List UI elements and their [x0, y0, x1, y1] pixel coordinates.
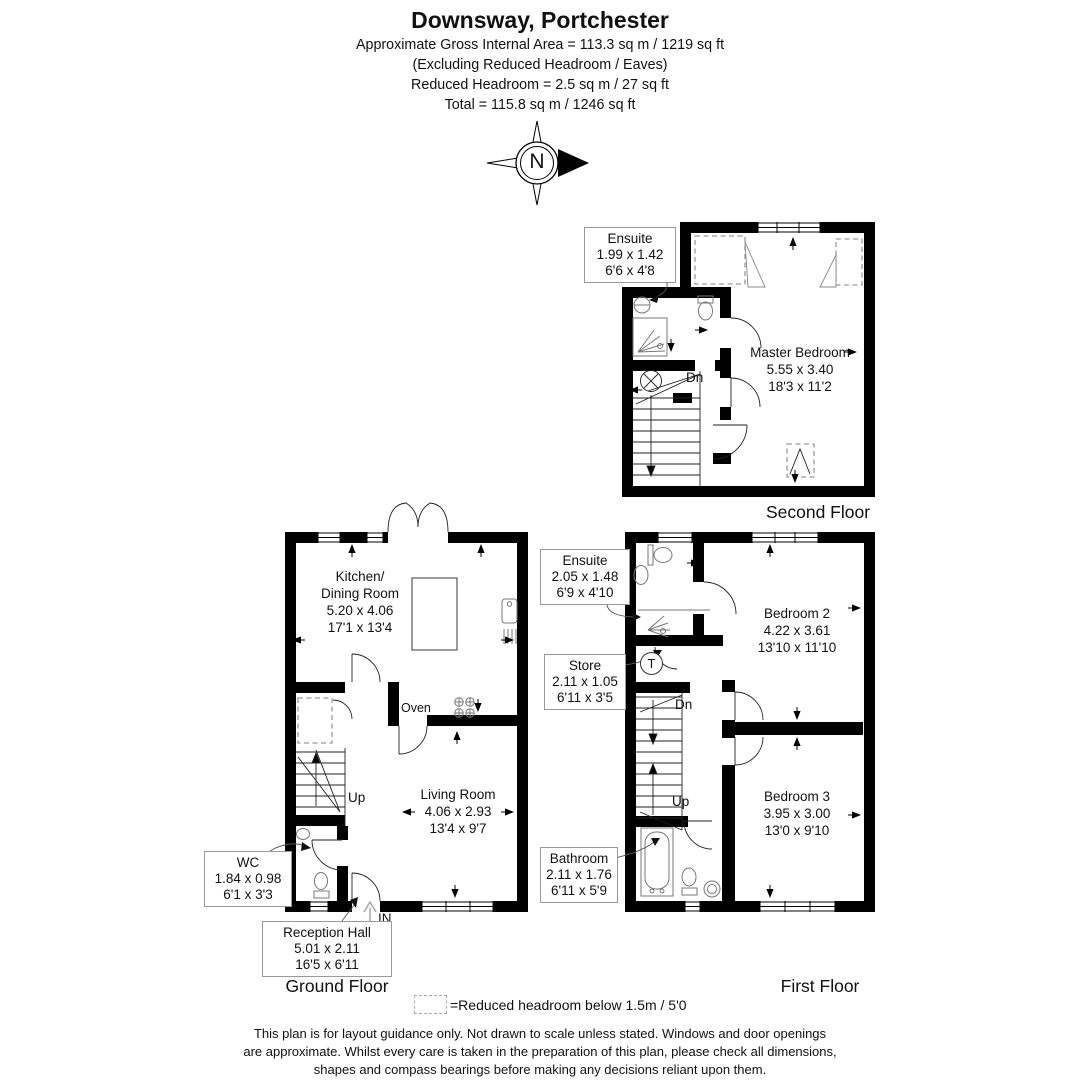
room-size-imperial: 6'9 x 4'10	[543, 585, 627, 601]
callout-reception-hall: Reception Hall 5.01 x 2.11 16'5 x 6'11	[262, 921, 392, 977]
disclaimer-line: shapes and compass bearings before makin…	[314, 1061, 766, 1079]
room-size-imperial: 17'1 x 13'4	[321, 619, 399, 636]
ground-floor-plan	[270, 503, 528, 928]
room-size-imperial: 6'11 x 3'5	[547, 690, 623, 706]
legend-text: =Reduced headroom below 1.5m / 5'0	[450, 997, 687, 1013]
legend: =Reduced headroom below 1.5m / 5'0	[414, 995, 687, 1014]
room-name: Master Bedroom	[750, 344, 850, 361]
shower-icon	[633, 318, 667, 356]
area-summary-line: Approximate Gross Internal Area = 113.3 …	[356, 36, 724, 56]
room-size-metric: 4.06 x 2.93	[420, 803, 495, 820]
room-size-metric: 5.20 x 4.06	[321, 602, 399, 619]
toilet-icon	[682, 868, 697, 895]
sink-icon	[634, 566, 648, 585]
room-name: Store	[547, 658, 623, 674]
room-size-imperial: 16'5 x 6'11	[265, 957, 389, 973]
stairs-down	[633, 371, 700, 487]
room-size-metric: 1.99 x 1.42	[587, 247, 673, 263]
sink-icon	[704, 881, 720, 897]
area-summary-line: Reduced Headroom = 2.5 sq m / 27 sq ft	[411, 76, 669, 96]
reduced-headroom-area	[836, 239, 862, 285]
stairs-up	[296, 748, 345, 826]
staircase	[636, 693, 682, 830]
room-name: Ensuite	[587, 231, 673, 247]
toilet-icon	[648, 545, 672, 565]
toilet-icon	[698, 296, 713, 320]
floorplan-page: Downsway, Portchester Approximate Gross …	[0, 0, 1080, 1080]
room-size-imperial: 18'3 x 11'2	[750, 378, 850, 395]
room-label-bedroom-2: Bedroom 2 4.22 x 3.61 13'10 x 11'10	[758, 605, 836, 656]
room-name: Reception Hall	[265, 925, 389, 941]
area-summary-line: (Excluding Reduced Headroom / Eaves)	[412, 56, 667, 76]
stairs-down-label: Dn	[675, 697, 692, 712]
room-name: Dining Room	[321, 585, 399, 602]
reduced-headroom-area	[695, 236, 745, 284]
room-label-bedroom-3: Bedroom 3 3.95 x 3.00 13'0 x 9'10	[764, 788, 831, 839]
tank-icon: T	[640, 652, 663, 675]
hob-icon	[455, 698, 474, 717]
room-size-imperial: 6'6 x 4'8	[587, 263, 673, 279]
eaves-door-icon	[745, 242, 765, 287]
callout-ensuite-second: Ensuite 1.99 x 1.42 6'6 x 4'8	[584, 227, 676, 283]
page-title: Downsway, Portchester	[411, 7, 669, 34]
stairs-up-label: Up	[672, 794, 689, 809]
disclaimer-line: are approximate. Whilst every care is ta…	[243, 1043, 836, 1061]
room-size-imperial: 13'10 x 11'10	[758, 639, 836, 656]
callout-wc: WC 1.84 x 0.98 6'1 x 3'3	[204, 851, 292, 907]
room-size-metric: 2.11 x 1.05	[547, 674, 623, 690]
room-name: Kitchen/	[321, 568, 399, 585]
room-size-metric: 1.84 x 0.98	[207, 871, 289, 887]
floor-name-second: Second Floor	[766, 502, 870, 523]
room-size-imperial: 6'11 x 5'9	[543, 883, 615, 899]
floor-name-ground: Ground Floor	[285, 976, 388, 997]
sink-icon	[634, 297, 650, 313]
room-size-imperial: 13'0 x 9'10	[764, 822, 831, 839]
callout-bathroom: Bathroom 2.11 x 1.76 6'11 x 5'9	[540, 847, 618, 903]
room-size-metric: 2.11 x 1.76	[543, 867, 615, 883]
stairs-up-label: Up	[348, 790, 365, 805]
room-size-metric: 2.05 x 1.48	[543, 569, 627, 585]
room-name: Ensuite	[543, 553, 627, 569]
kitchen-sink-icon	[502, 599, 517, 644]
north-arrow-icon	[558, 149, 589, 177]
room-size-metric: 5.55 x 3.40	[750, 361, 850, 378]
room-size-metric: 3.95 x 3.00	[764, 805, 831, 822]
room-label-master-bedroom: Master Bedroom 5.55 x 3.40 18'3 x 11'2	[750, 344, 850, 395]
reduced-headroom-key-icon	[414, 995, 447, 1014]
room-name: Bedroom 2	[758, 605, 836, 622]
callout-store: Store 2.11 x 1.05 6'11 x 3'5	[544, 654, 626, 710]
french-doors-icon	[388, 503, 448, 532]
room-name: Bathroom	[543, 851, 615, 867]
room-label-kitchen-dining: Kitchen/ Dining Room 5.20 x 4.06 17'1 x …	[321, 568, 399, 636]
first-floor-walls	[625, 532, 875, 912]
first-floor-plan	[607, 532, 875, 912]
room-size-imperial: 6'1 x 3'3	[207, 887, 289, 903]
disclaimer-line: This plan is for layout guidance only. N…	[254, 1025, 826, 1043]
skylight-icon	[787, 444, 814, 477]
room-size-metric: 5.01 x 2.11	[265, 941, 389, 957]
oven-label: Oven	[401, 701, 431, 715]
eaves-door-icon	[820, 255, 836, 287]
kitchen-island	[412, 578, 457, 650]
area-summary-line: Total = 115.8 sq m / 1246 sq ft	[445, 96, 636, 116]
room-name: Living Room	[420, 786, 495, 803]
stairs-down-label: Dn	[686, 370, 703, 385]
wc-sink-icon	[297, 829, 310, 840]
room-size-imperial: 13'4 x 9'7	[420, 820, 495, 837]
room-name: WC	[207, 855, 289, 871]
reduced-headroom-area	[298, 698, 332, 743]
callout-ensuite-first: Ensuite 2.05 x 1.48 6'9 x 4'10	[540, 549, 630, 605]
window-icon	[758, 222, 820, 233]
compass-north-label: N	[529, 150, 544, 174]
room-label-living-room: Living Room 4.06 x 2.93 13'4 x 9'7	[420, 786, 495, 837]
floor-name-first: First Floor	[781, 976, 860, 997]
room-name: Bedroom 3	[764, 788, 831, 805]
toilet-icon	[314, 873, 329, 899]
room-size-metric: 4.22 x 3.61	[758, 622, 836, 639]
